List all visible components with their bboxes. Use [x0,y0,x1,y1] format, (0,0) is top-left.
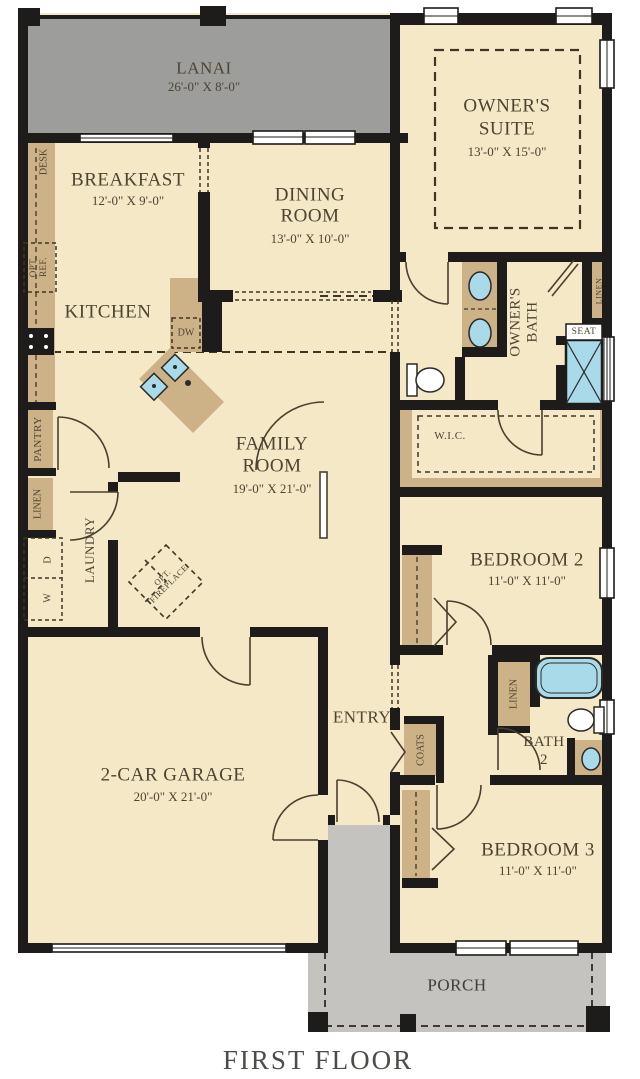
dining-label-1: DINING [275,186,346,207]
family-dims: 19'-0" X 21'-0" [233,482,312,496]
wic-label: W.I.C. [434,430,466,442]
kitchen-label: KITCHEN [65,303,152,324]
bedroom2-label: BEDROOM 2 [470,551,584,572]
owners-suite-label-2: SUITE [479,120,535,141]
seat-label: SEAT [572,327,597,337]
linen-owner-label: LINEN [596,278,605,305]
bath2-toilet-tank [594,707,604,733]
garage-dims: 20'-0" X 21'-0" [134,790,213,804]
breakfast-dims: 12'-0" X 9'-0" [92,194,164,208]
owners-suite-dims: 13'-0" X 15'-0" [468,145,547,159]
bath2-label-2: 2 [540,752,548,769]
bedroom3-dims: 11'-0" X 11'-0" [499,864,577,878]
owners-suite-label-1: OWNER'S [463,97,550,118]
bath2-toilet-bowl [568,709,594,731]
garage-label: 2-CAR GARAGE [101,766,246,787]
lanai-label: LANAI [176,60,231,79]
entry-label: ENTRY [333,709,391,728]
entry-walkway [328,825,390,955]
lanai-dims: 26'-0" X 8'-0" [168,80,240,94]
linen-kitchen-label: LINEN [33,489,44,519]
coats-label: COATS [416,734,427,766]
dining-label-2: ROOM [280,207,339,228]
dryer-label: D [43,556,54,563]
bath2-label-1: BATH [523,734,564,751]
dw-label: DW [178,328,195,339]
bedroom2-dims: 11'-0" X 11'-0" [488,574,566,588]
pantry-label: PANTRY [32,416,44,461]
breakfast-label: BREAKFAST [71,171,185,192]
desk-label: DESK [39,149,50,175]
bath2-sink [582,748,600,770]
owner-toilet-bowl [416,368,444,392]
floor-plan: LANAI 26'-0" X 8'-0" BREAKFAST 12'-0" X … [0,0,640,1079]
wic-floor [412,410,600,478]
floor-caption: FIRST FLOOR [223,1046,413,1076]
dining-dims: 13'-0" X 10'-0" [271,232,350,246]
family-label-2: ROOM [242,457,301,478]
vanity-sink-1 [469,272,491,300]
owners-bath-label: OWNER'S BATH [508,287,541,357]
bedroom3-label: BEDROOM 3 [481,841,595,862]
porch-label: PORCH [427,977,486,996]
laundry-label: LAUNDRY [83,517,97,583]
vanity-sink-2 [469,319,491,347]
linen-bath2-label: LINEN [509,679,520,709]
family-label-1: FAMILY [236,435,309,456]
washer-label: W [43,593,54,602]
opt-ref-label: OPT. REF. [29,257,49,278]
